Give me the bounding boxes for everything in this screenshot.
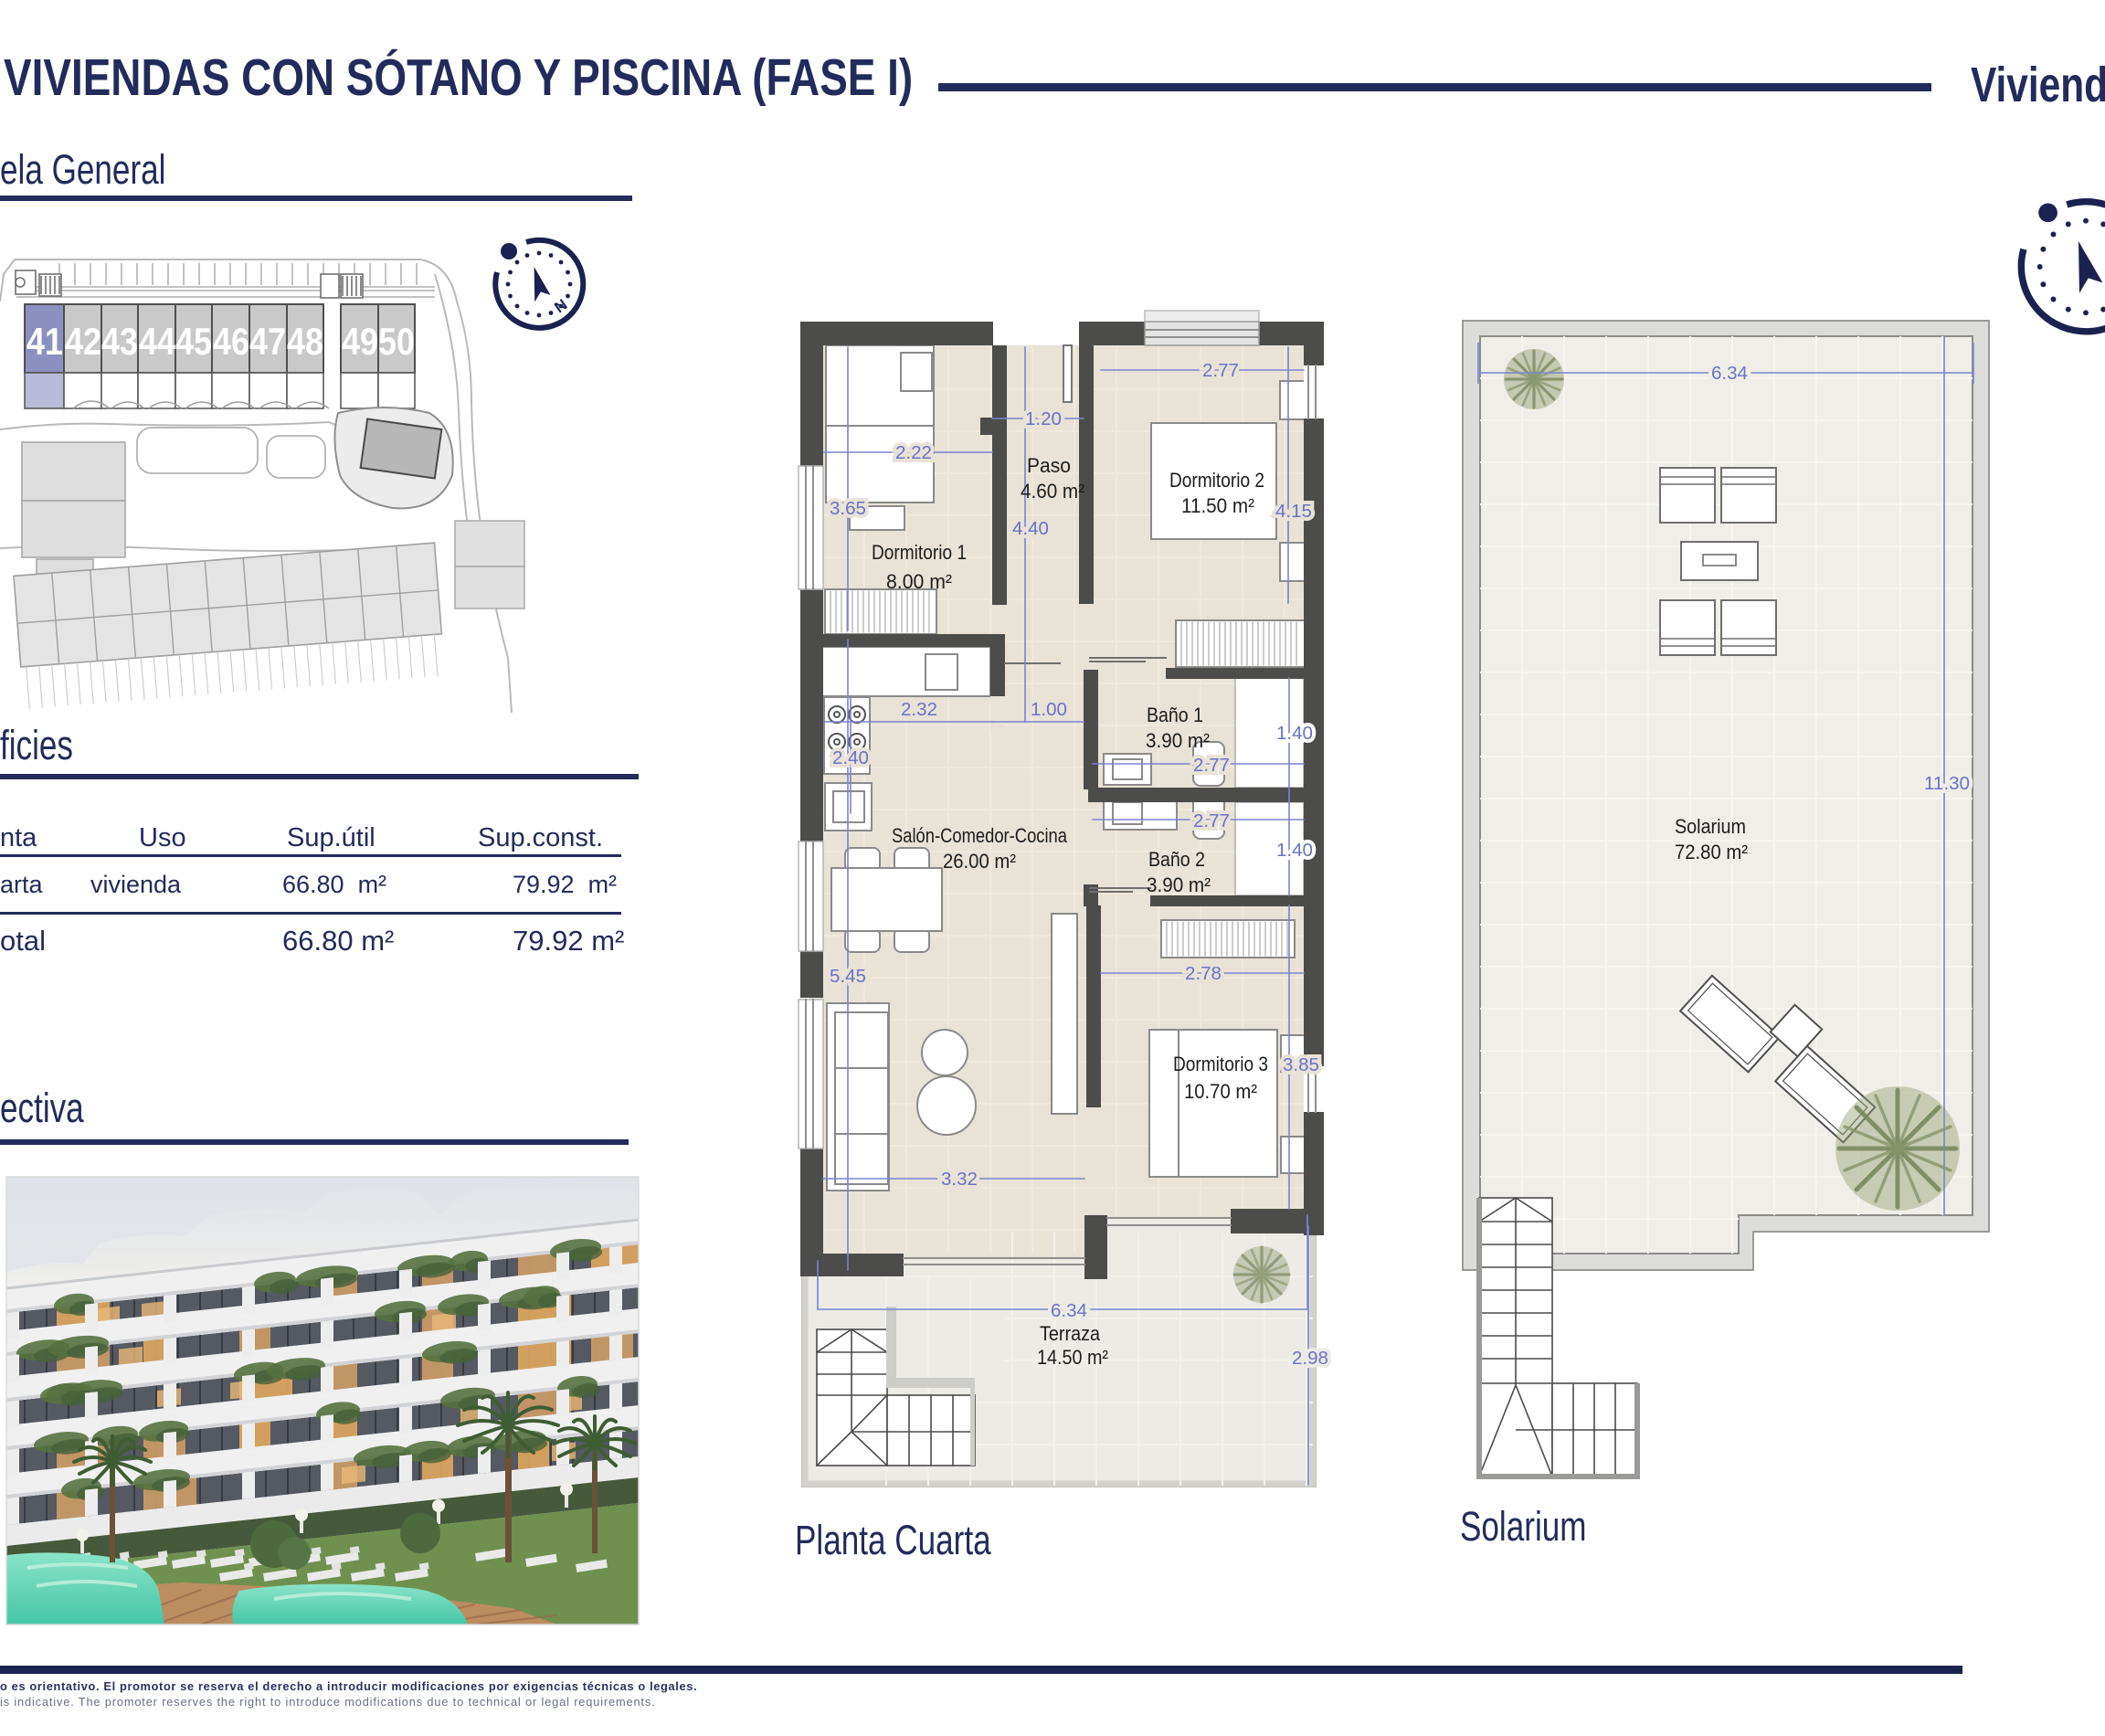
- svg-text:2.40: 2.40: [832, 748, 869, 768]
- svg-text:3.65: 3.65: [830, 499, 866, 519]
- svg-text:Terraza: Terraza: [1040, 1322, 1101, 1345]
- svg-text:2.78: 2.78: [1185, 964, 1222, 984]
- svg-text:2.22: 2.22: [895, 443, 932, 463]
- svg-text:44: 44: [139, 320, 176, 363]
- svg-text:3.90 m²: 3.90 m²: [1147, 873, 1211, 896]
- svg-text:11.50 m²: 11.50 m²: [1181, 494, 1254, 517]
- svg-text:8.00 m²: 8.00 m²: [886, 570, 952, 593]
- svg-text:5.45: 5.45: [830, 967, 866, 987]
- svg-text:50: 50: [378, 320, 415, 363]
- svg-text:26.00 m²: 26.00 m²: [943, 850, 1016, 873]
- svg-text:2.77: 2.77: [1193, 756, 1230, 776]
- svg-text:Baño 2: Baño 2: [1148, 848, 1205, 871]
- svg-text:1.40: 1.40: [1276, 724, 1313, 744]
- svg-text:1.20: 1.20: [1025, 409, 1062, 429]
- svg-text:10.70 m²: 10.70 m²: [1184, 1080, 1257, 1103]
- svg-text:3.85: 3.85: [1283, 1055, 1319, 1075]
- svg-text:49: 49: [342, 320, 378, 363]
- svg-text:2.77: 2.77: [1193, 811, 1230, 831]
- svg-text:Dormitorio 2: Dormitorio 2: [1169, 469, 1264, 492]
- svg-text:N: N: [551, 296, 570, 317]
- svg-text:1.40: 1.40: [1276, 841, 1313, 861]
- svg-text:Dormitorio 3: Dormitorio 3: [1173, 1053, 1268, 1075]
- svg-text:4.40: 4.40: [1012, 519, 1049, 539]
- svg-text:Dormitorio 1: Dormitorio 1: [872, 541, 967, 564]
- svg-text:46: 46: [213, 320, 249, 363]
- svg-text:14.50 m²: 14.50 m²: [1037, 1346, 1108, 1369]
- svg-text:1.00: 1.00: [1031, 700, 1067, 720]
- svg-text:Salón-Comedor-Cocina: Salón-Comedor-Cocina: [892, 824, 1068, 847]
- svg-text:6.34: 6.34: [1051, 1301, 1087, 1321]
- svg-text:3.32: 3.32: [941, 1170, 978, 1190]
- svg-text:2.77: 2.77: [1202, 361, 1239, 381]
- svg-text:43: 43: [101, 320, 138, 363]
- svg-text:41: 41: [26, 320, 63, 363]
- svg-text:45: 45: [175, 320, 212, 363]
- svg-text:Solarium: Solarium: [1675, 815, 1746, 838]
- svg-text:2.32: 2.32: [901, 700, 937, 720]
- svg-text:48: 48: [287, 320, 323, 363]
- svg-text:4.60 m²: 4.60 m²: [1021, 480, 1084, 503]
- svg-text:Paso: Paso: [1027, 454, 1071, 477]
- svg-text:Baño 1: Baño 1: [1147, 704, 1203, 726]
- svg-text:6.34: 6.34: [1711, 364, 1748, 384]
- svg-text:3.90 m²: 3.90 m²: [1146, 729, 1210, 752]
- svg-text:11.30: 11.30: [1924, 774, 1970, 794]
- svg-text:72.80 m²: 72.80 m²: [1675, 841, 1748, 863]
- svg-text:47: 47: [249, 320, 286, 363]
- svg-text:2.98: 2.98: [1292, 1349, 1328, 1369]
- svg-text:4.15: 4.15: [1275, 502, 1312, 522]
- svg-text:42: 42: [65, 320, 101, 363]
